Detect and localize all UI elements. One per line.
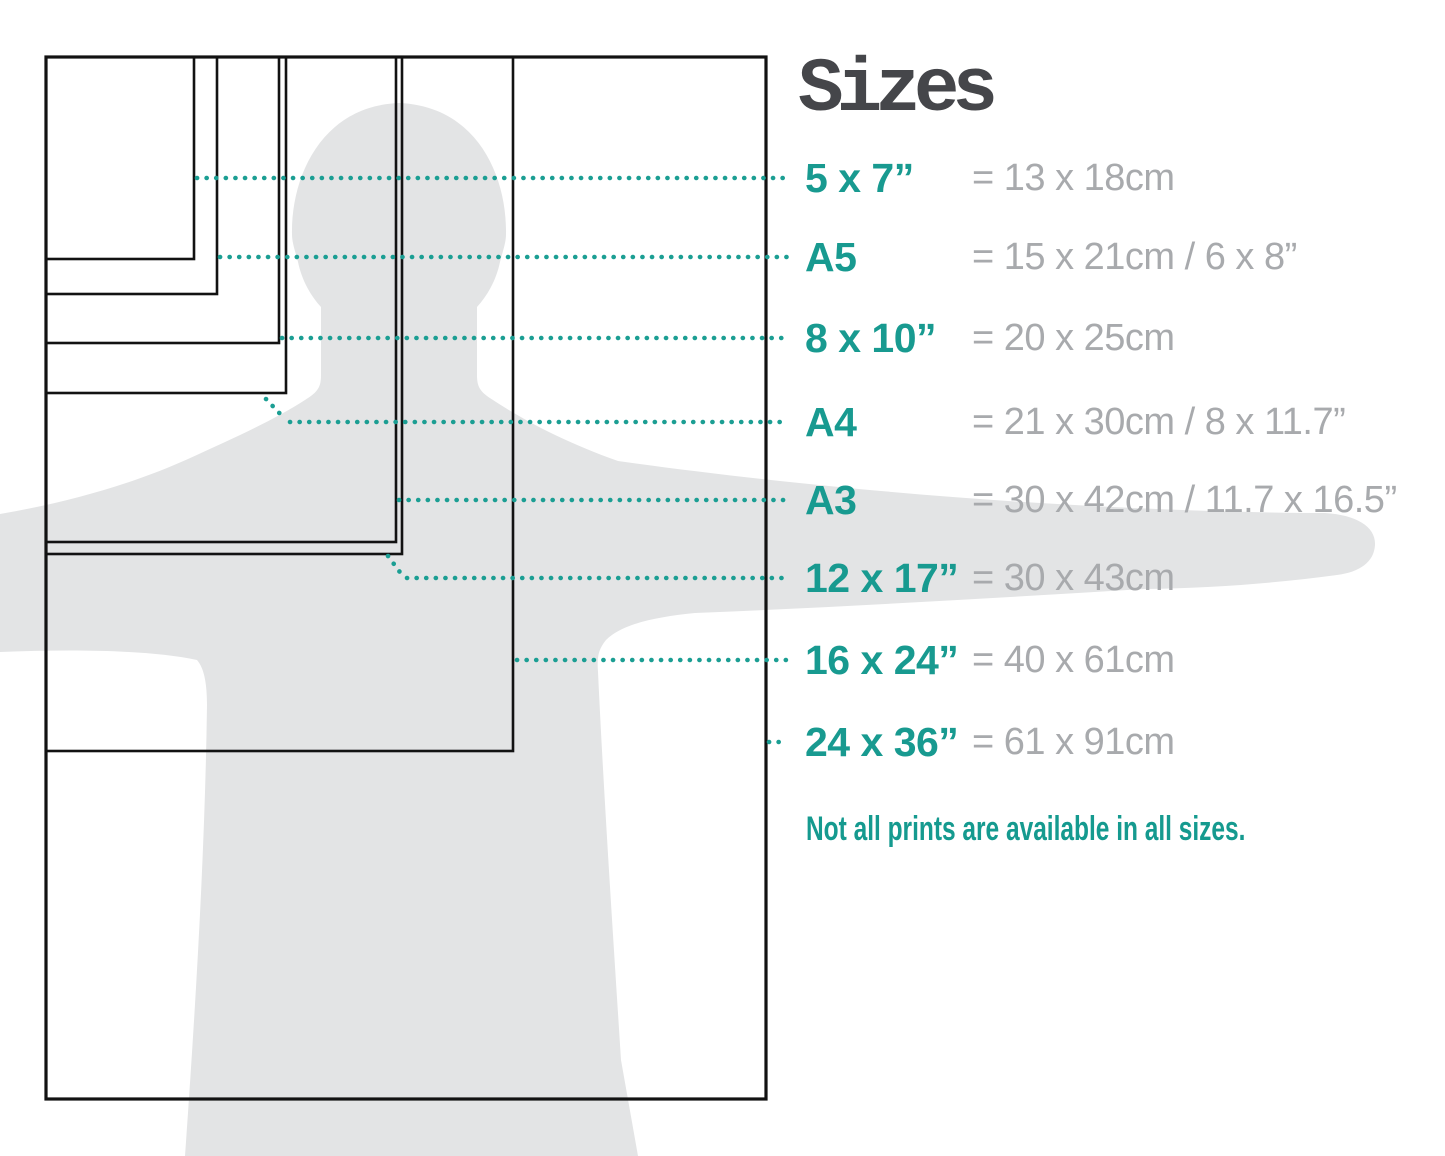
page-title: Sizes (798, 52, 991, 128)
size-label: 5 x 7” (805, 153, 914, 203)
availability-note: Not all prints are available in all size… (806, 811, 1245, 847)
size-value: = 30 x 42cm / 11.7 x 16.5” (972, 475, 1397, 525)
size-row: 5 x 7” = 13 x 18cm (0, 153, 1445, 203)
size-row: 16 x 24” = 40 x 61cm (0, 635, 1445, 685)
size-row: 24 x 36” = 61 x 91cm (0, 717, 1445, 767)
size-value: = 21 x 30cm / 8 x 11.7” (972, 397, 1345, 447)
size-label: A4 (805, 397, 856, 447)
size-value: = 30 x 43cm (972, 553, 1175, 603)
size-row: A4 = 21 x 30cm / 8 x 11.7” (0, 397, 1445, 447)
size-label: 12 x 17” (805, 553, 958, 603)
size-value: = 40 x 61cm (972, 635, 1175, 685)
size-row: A5 = 15 x 21cm / 6 x 8” (0, 232, 1445, 282)
size-value: = 13 x 18cm (972, 153, 1175, 203)
size-row: 12 x 17” = 30 x 43cm (0, 553, 1445, 603)
size-label: A5 (805, 232, 856, 282)
size-label: 16 x 24” (805, 635, 958, 685)
size-value: = 20 x 25cm (972, 313, 1175, 363)
size-row: 8 x 10” = 20 x 25cm (0, 313, 1445, 363)
size-value: = 61 x 91cm (972, 717, 1175, 767)
size-label: 24 x 36” (805, 717, 958, 767)
size-label: A3 (805, 475, 856, 525)
size-row: A3 = 30 x 42cm / 11.7 x 16.5” (0, 475, 1445, 525)
size-value: = 15 x 21cm / 6 x 8” (972, 232, 1297, 282)
size-label: 8 x 10” (805, 313, 936, 363)
size-guide: Sizes 5 x 7” = 13 x 18cm A5 = 15 x 21cm … (0, 0, 1445, 1156)
